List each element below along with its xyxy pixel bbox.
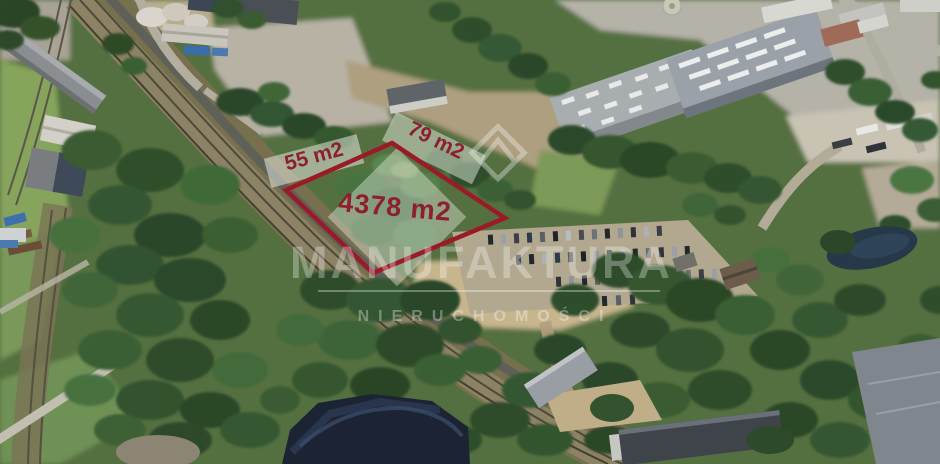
aerial-property-photo: 55 m2 79 m2 4378 m2 MANUFAKTURA NIERUCHO… [0,0,940,464]
watermark-divider [318,290,660,292]
brand-diamond-logo-icon [0,0,940,464]
watermark-brand-text: MANUFAKTURA [290,237,664,289]
watermark-subtitle-text: NIERUCHOMOŚCI [335,308,635,326]
